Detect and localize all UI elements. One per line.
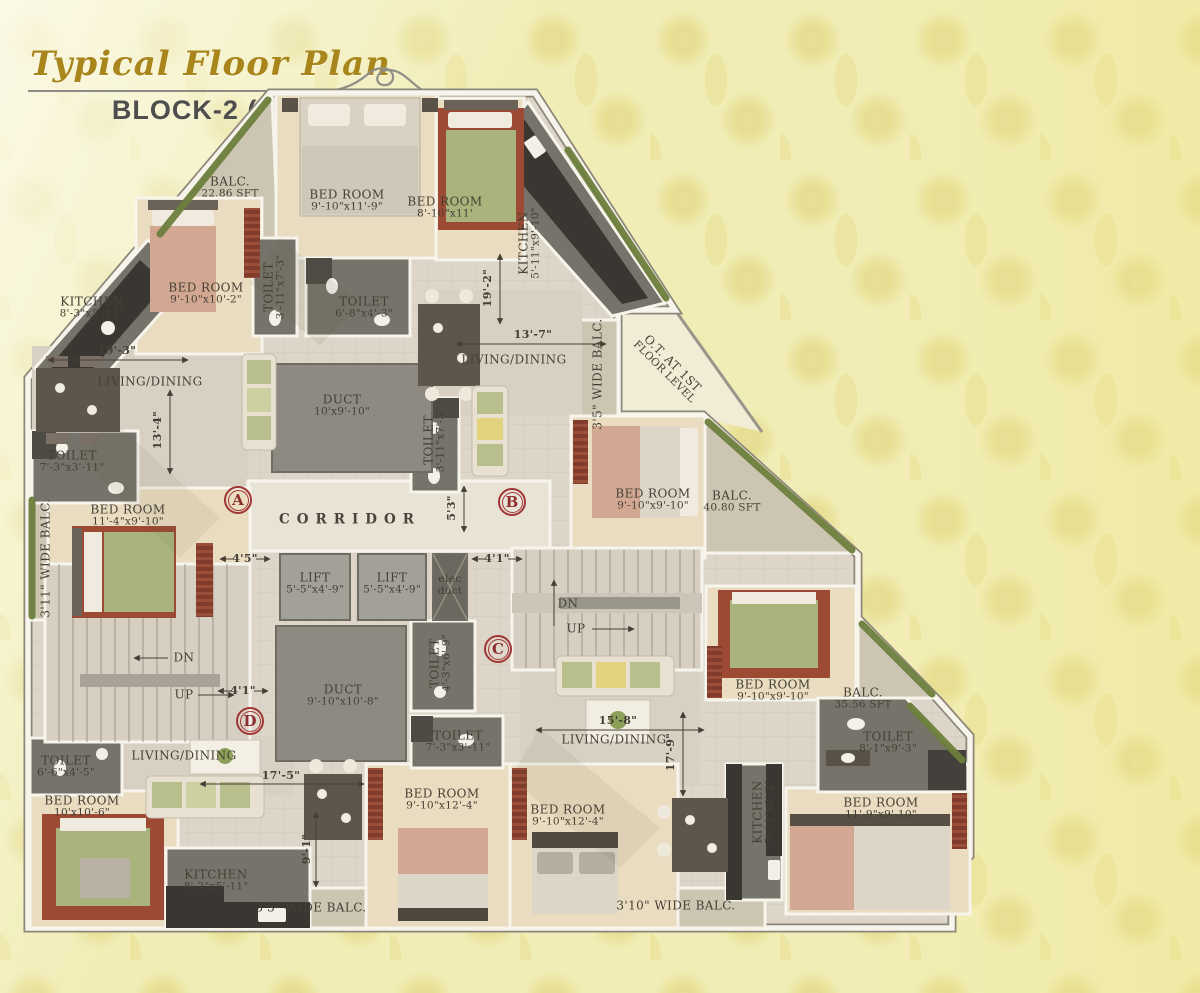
bedroom-1-label: BED ROOM9'-10"x11'-9" — [309, 188, 384, 213]
kitchen-1-label: KITCHEN5'-11"x9'-10" — [517, 207, 542, 279]
toilet-1-label: TOILET3'-11"x7'-3" — [262, 255, 287, 320]
kitchen-4-label: KITCHEN5'-11"x8'-2" — [751, 780, 776, 845]
column-marker-d: D — [236, 707, 264, 735]
dim-9-1: 9'-1" — [301, 834, 313, 864]
column-marker-a: A — [224, 486, 252, 514]
toilet-8-label: TOILET6'-6"x4'-5" — [37, 754, 95, 779]
bedroom-5-label: BED ROOM9'-10"x9'-10" — [615, 487, 690, 512]
bedroom-3-label: BED ROOM9'-10"x10'-2" — [168, 281, 243, 306]
stairs-right-dn-label: DN — [558, 597, 579, 610]
bedroom-2-label: BED ROOM8'-10"x11' — [407, 195, 482, 220]
kitchen-3-label: KITCHEN8'-2"x5'-11" — [184, 868, 249, 893]
balc-4-label: 3'10" WIDE BALC. — [616, 899, 735, 912]
dim-13-4: 13'-4" — [152, 411, 164, 449]
living-3-label: LIVING/DINING — [561, 733, 666, 746]
balc-1-label: 3'5" WIDE BALC. — [591, 318, 604, 429]
stairs-right-up-label: UP — [567, 622, 586, 635]
bedroom-6-label: BED ROOM10'x10'-6" — [44, 794, 119, 819]
kitchen-2-label: KITCHEN8'-3"x5'-11" — [60, 295, 125, 320]
living-2-label: LIVING/DINING — [461, 353, 566, 366]
duct-1-label: DUCT10'x9'-10" — [314, 393, 370, 418]
duct-2-label: DUCT9'-10"x10'-8" — [307, 683, 379, 708]
bedroom-4-label: BED ROOM11'-4"x9'-10" — [90, 503, 165, 528]
stairs-left-up-label: UP — [175, 688, 194, 701]
dim-19-2: 19'-2" — [482, 269, 494, 307]
bedroom-10-label: BED ROOM9'-10"x9'-10" — [735, 678, 810, 703]
lift-2-label: LIFT5'-5"x4'-9" — [363, 571, 421, 596]
dim-15-8: 15'-8" — [599, 715, 637, 727]
toilet-5-label: TOILET4'-3"x6'-9" — [428, 634, 453, 692]
bedroom-7-label: BED ROOM9'-10"x12'-4" — [404, 787, 479, 812]
dim-5-3: 5'3" — [446, 495, 458, 521]
living-4-label: LIVING/DINING — [131, 749, 236, 762]
column-marker-c: C — [484, 635, 512, 663]
dim-4-1b: 4'1" — [230, 685, 256, 697]
floor-plan: BALC.22.86 SFTBED ROOM9'-10"x11'-9"BED R… — [20, 88, 975, 933]
column-marker-b: B — [498, 488, 526, 516]
dim-17-5: 17'-5" — [262, 770, 300, 782]
stairs-right — [512, 548, 702, 670]
lift-1-label: LIFT5'-5"x4'-9" — [286, 571, 344, 596]
balc-2-label: 3'11" WIDE BALC. — [39, 498, 52, 617]
dim-4-5: 4'5" — [232, 553, 258, 565]
balc-2286-label: BALC.22.86 SFT — [201, 175, 258, 200]
floor-plan-page: { "title": "Typical Floor Plan", "subtit… — [0, 0, 1200, 993]
stairs-left-dn-label: DN — [174, 651, 195, 664]
toilet-3-label: TOILET7'-3"x3'-11" — [40, 449, 105, 474]
toilet-7-label: TOILET8'-1"x9'-3" — [859, 730, 917, 755]
corridor-label: CORRIDOR — [279, 512, 421, 527]
toilet-4-label: TOILET3'-11"x7'-3" — [422, 408, 447, 473]
bedroom-9-label: BED ROOM11'-9"x9'-10" — [843, 796, 918, 821]
balc-3556-label: BALC.35.56 SFT — [834, 686, 891, 711]
dim-13-7: 13'-7" — [514, 329, 552, 341]
toilet-2-label: TOILET6'-8"x4'-3" — [335, 295, 393, 320]
dim-4-1a: 4'1" — [484, 553, 510, 565]
dim-19-3: 19'-3" — [98, 345, 136, 357]
dim-17-9: 17'-9" — [665, 733, 677, 771]
bedroom-8-label: BED ROOM9'-10"x12'-4" — [530, 803, 605, 828]
balc-3-label: 3'3" WIDE BALC. — [255, 901, 366, 914]
elec-duct-label: elecduct — [438, 574, 463, 598]
balc-4080-label: BALC.40.80 SFT — [703, 489, 760, 514]
toilet-6-label: TOILET7'-3"x3'-11" — [426, 729, 491, 754]
living-1-label: LIVING/DINING — [97, 375, 202, 388]
